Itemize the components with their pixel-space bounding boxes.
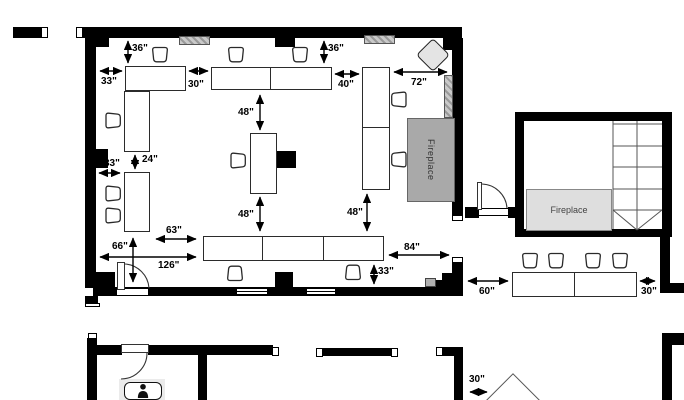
wall-lower-branch xyxy=(198,355,207,400)
desk-l-horizontal xyxy=(125,66,186,91)
fireplace-right-label: Fireplace xyxy=(550,205,587,215)
wall-rightroom-right xyxy=(662,112,672,237)
desk-divider xyxy=(270,68,271,89)
diamond-feature-lower xyxy=(486,373,540,400)
vent-hatch xyxy=(179,36,210,45)
wall-rightroom-foot xyxy=(660,283,684,293)
dim-label: 66" xyxy=(112,242,128,252)
chair-icon xyxy=(392,152,406,167)
dim-label: 48" xyxy=(238,108,254,118)
desk-left xyxy=(124,172,150,232)
wall-end-cap xyxy=(452,215,463,221)
wall-lower-h2 xyxy=(148,345,273,355)
wall-end-cap xyxy=(272,347,279,356)
wall-fragment-top-left xyxy=(13,27,42,38)
dim-label: 33" xyxy=(104,159,120,169)
chair-icon xyxy=(613,254,628,268)
dim-label: 30" xyxy=(641,287,657,297)
fireplace-main-label: Fireplace xyxy=(426,139,436,181)
dim-label: 36" xyxy=(328,44,344,54)
wall-step-mid xyxy=(442,273,452,296)
dim-label: 33" xyxy=(378,267,394,277)
dim-label: 30" xyxy=(469,375,485,385)
wall-end-cap xyxy=(41,27,48,38)
desk-top-long xyxy=(211,67,332,90)
chair-icon xyxy=(523,254,538,268)
chair-icon xyxy=(293,48,308,62)
desk-divider xyxy=(262,237,263,260)
dim-label: 84" xyxy=(404,243,420,253)
chair-icon xyxy=(586,254,601,268)
desk-divider xyxy=(574,273,575,296)
wall-step-low xyxy=(435,280,442,296)
window xyxy=(307,288,335,295)
door-leaf xyxy=(121,344,149,353)
dim-label: 60" xyxy=(479,287,495,297)
vent-hatch xyxy=(364,35,395,44)
wall-lower-corner-v xyxy=(454,356,463,400)
floor-plan: Fireplace Fireplace xyxy=(0,0,684,400)
wall-lower-corner-h xyxy=(442,347,463,356)
chair-icon xyxy=(106,208,120,223)
wall-pier xyxy=(275,272,293,287)
dim-label: 48" xyxy=(347,208,363,218)
dim-label: 72" xyxy=(411,78,427,88)
chair-icon xyxy=(231,153,245,168)
wall-lower-h1 xyxy=(97,345,122,355)
desk-divider xyxy=(363,127,389,128)
restroom-fixture xyxy=(124,382,162,400)
chair-icon xyxy=(153,48,168,62)
chair-icon xyxy=(346,265,361,279)
fireplace-main: Fireplace xyxy=(407,118,455,202)
chair-icon xyxy=(228,266,243,280)
wall-rightroom-left xyxy=(515,112,524,237)
wall-end-cap xyxy=(85,303,100,307)
desk-right-vertical xyxy=(362,67,390,190)
floor-box xyxy=(425,278,436,287)
wall-main-left xyxy=(85,27,96,288)
dim-label: 36" xyxy=(132,44,148,54)
desk-l-vertical xyxy=(124,91,150,152)
window xyxy=(237,288,267,295)
wall-lower-left xyxy=(87,338,97,400)
wall-lower-mid xyxy=(322,348,392,356)
chair-icon xyxy=(392,92,406,107)
desk-bottom-long xyxy=(203,236,384,261)
wall-pier xyxy=(96,38,109,47)
chair-icon xyxy=(549,254,564,268)
fireplace-right: Fireplace xyxy=(526,189,612,231)
dim-label: 24" xyxy=(142,155,158,165)
wall-pier xyxy=(275,38,295,47)
wall-pier xyxy=(96,272,115,288)
wall-step-tall xyxy=(452,262,463,296)
vent-hatch-vertical xyxy=(444,75,453,118)
wall-rightroom-ext xyxy=(660,237,670,283)
dim-label: 40" xyxy=(338,80,354,90)
wall-far-right-v xyxy=(662,333,672,400)
person-icon xyxy=(125,383,161,398)
dim-label: 30" xyxy=(188,80,204,90)
wall-end-cap xyxy=(391,348,398,357)
door-threshold xyxy=(478,208,509,216)
dim-label: 126" xyxy=(158,261,179,271)
stairs-icon xyxy=(613,121,662,230)
wall-rightroom-top xyxy=(515,112,662,121)
desk-divider xyxy=(323,237,324,260)
dim-label: 33" xyxy=(101,77,117,87)
table-center xyxy=(250,133,277,194)
dim-label: 48" xyxy=(238,210,254,220)
door-leaf xyxy=(477,182,482,210)
chair-icon xyxy=(106,113,120,128)
chair-icon xyxy=(106,186,120,201)
door-leaf xyxy=(117,262,125,290)
chair-icon xyxy=(229,48,244,62)
wall-main-top xyxy=(82,27,462,38)
equipment-box xyxy=(277,151,296,168)
dim-label: 63" xyxy=(166,226,182,236)
